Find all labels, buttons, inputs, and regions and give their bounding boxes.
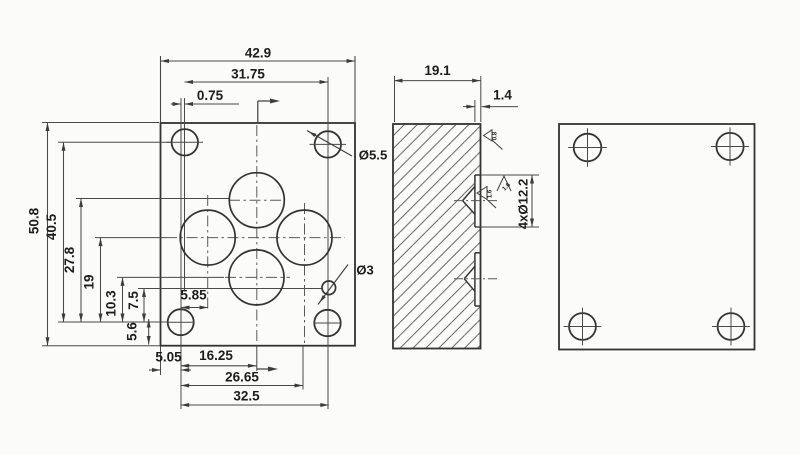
svg-text:19: 19 (82, 274, 97, 289)
svg-text:10.3: 10.3 (104, 290, 119, 317)
svg-text:7.5: 7.5 (126, 291, 141, 310)
svg-text:32.5: 32.5 (233, 389, 260, 404)
svg-text:0.8: 0.8 (493, 131, 499, 140)
svg-text:26.65: 26.65 (225, 370, 259, 385)
svg-text:0.75: 0.75 (197, 88, 224, 103)
svg-text:19.1: 19.1 (424, 63, 451, 78)
svg-text:1.4: 1.4 (493, 88, 512, 103)
svg-text:27.8: 27.8 (62, 246, 77, 273)
svg-text:5.05: 5.05 (155, 350, 182, 365)
svg-text:5.6: 5.6 (125, 322, 140, 341)
svg-text:1.6: 1.6 (488, 189, 494, 198)
svg-text:16.25: 16.25 (199, 348, 233, 363)
svg-text:42.9: 42.9 (245, 46, 271, 61)
svg-text:Ø3: Ø3 (356, 263, 373, 278)
svg-text:50.8: 50.8 (27, 207, 42, 234)
svg-text:40.5: 40.5 (44, 213, 59, 240)
svg-text:4xØ12.2: 4xØ12.2 (516, 179, 531, 230)
svg-text:5.85: 5.85 (180, 288, 207, 303)
svg-text:Ø5.5: Ø5.5 (359, 148, 388, 163)
svg-text:31.75: 31.75 (231, 67, 265, 82)
